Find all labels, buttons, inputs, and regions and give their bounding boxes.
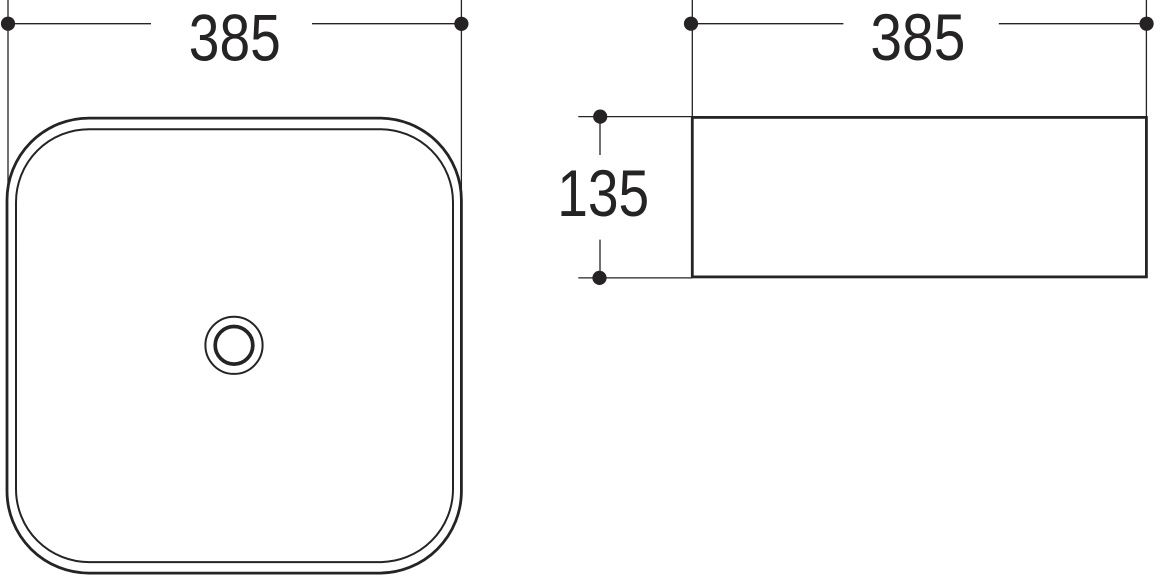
svg-text:385: 385 bbox=[870, 1, 965, 74]
svg-text:135: 135 bbox=[557, 157, 649, 230]
svg-text:385: 385 bbox=[189, 1, 281, 74]
